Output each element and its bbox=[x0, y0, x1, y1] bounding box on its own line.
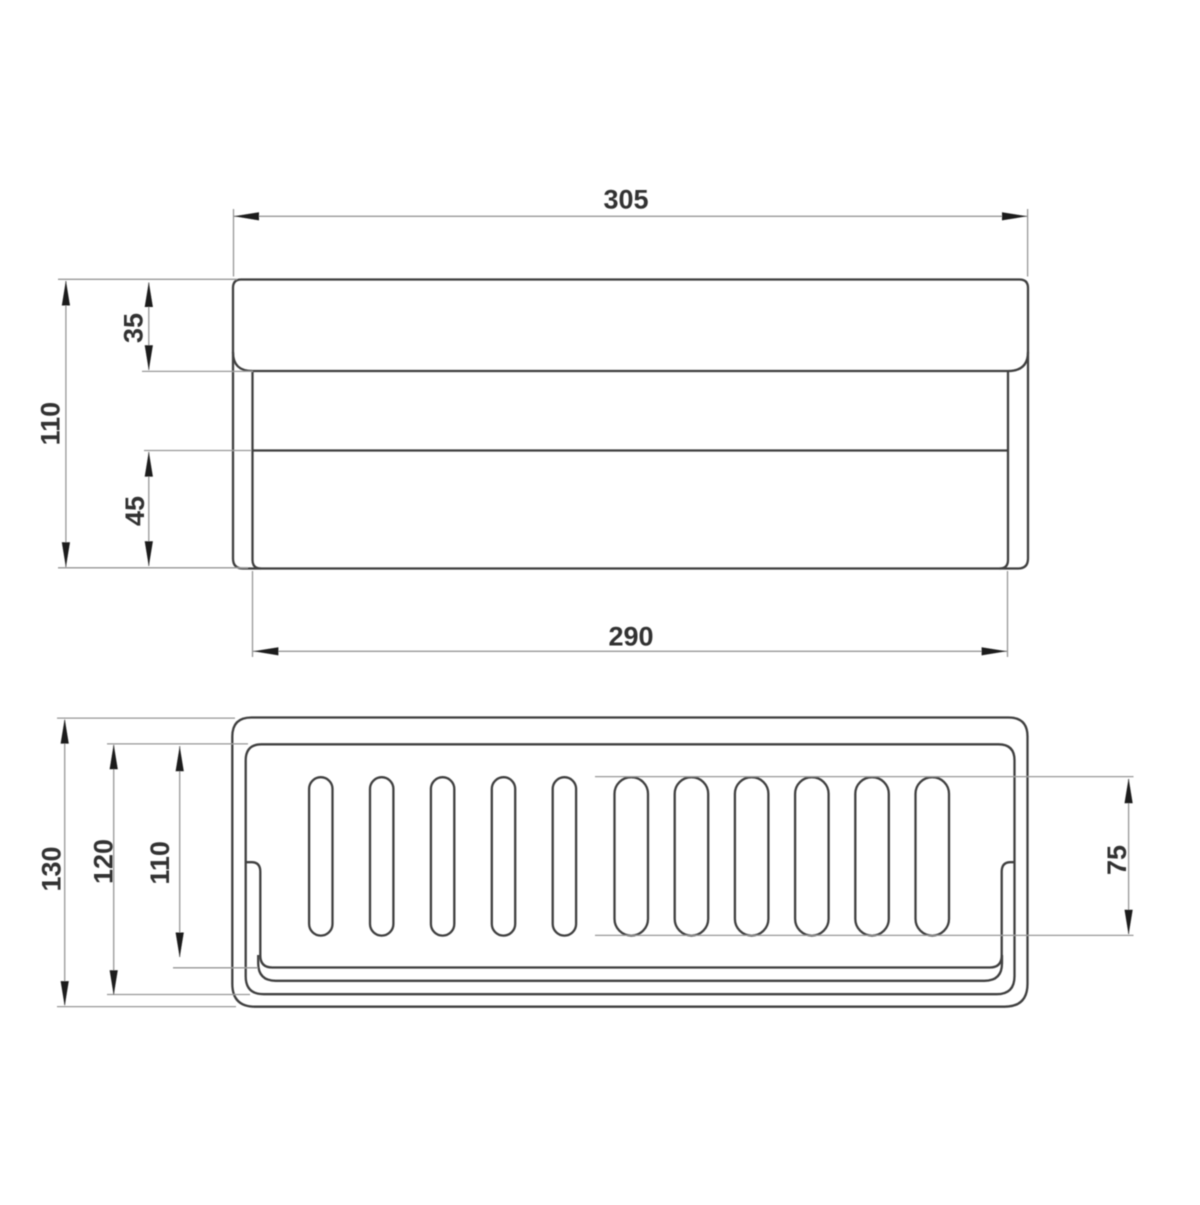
svg-text:290: 290 bbox=[608, 622, 653, 652]
svg-text:45: 45 bbox=[120, 496, 150, 526]
svg-text:130: 130 bbox=[37, 846, 67, 891]
svg-text:75: 75 bbox=[1102, 845, 1132, 875]
svg-text:110: 110 bbox=[36, 402, 66, 446]
svg-text:35: 35 bbox=[118, 313, 148, 343]
svg-text:110: 110 bbox=[145, 841, 175, 885]
svg-text:305: 305 bbox=[603, 185, 648, 215]
svg-text:120: 120 bbox=[89, 839, 119, 884]
